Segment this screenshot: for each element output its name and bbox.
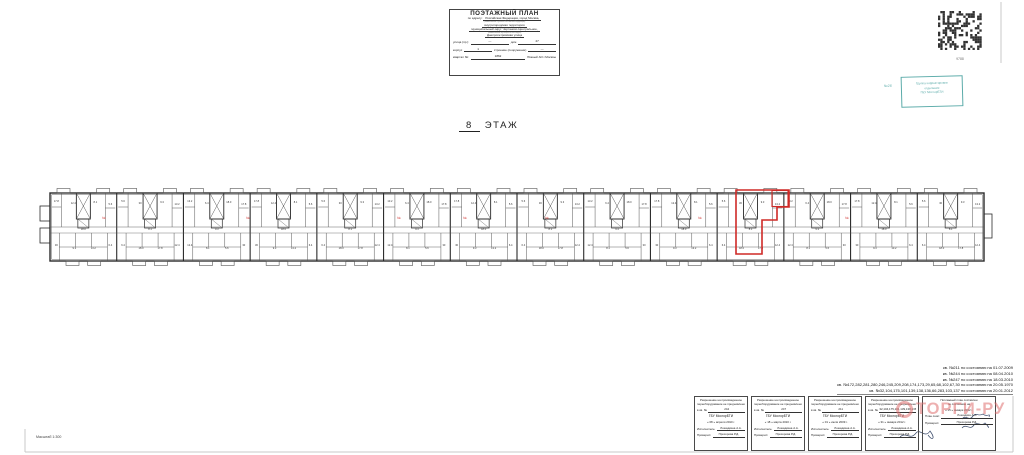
- svg-text:13.2: 13.2: [175, 202, 181, 206]
- kv-label: в кв. №: [811, 409, 821, 413]
- title-block-title: ПОЭТАЖНЫЙ ПЛАН: [453, 12, 556, 16]
- svg-text:9.3: 9.3: [815, 227, 819, 231]
- svg-text:12.4: 12.4: [871, 201, 877, 205]
- permission-stamp-2: Разрешение на произведенное переоборудов…: [751, 396, 805, 451]
- svg-text:6.4: 6.4: [109, 243, 113, 247]
- svg-text:17.8: 17.8: [454, 199, 460, 203]
- svg-text:9.3: 9.3: [73, 246, 77, 250]
- title-row-kvartal: квартал №: 1862 Южный АО г.Москвы: [453, 55, 556, 60]
- qr-code-icon: [937, 10, 983, 50]
- svg-text:18.0: 18.0: [339, 246, 345, 250]
- svg-text:12.4: 12.4: [187, 243, 193, 247]
- qr-block: 9788: [937, 10, 983, 61]
- svg-text:17.8: 17.8: [558, 246, 564, 250]
- svg-text:30: 30: [339, 201, 342, 205]
- row1-blank: —: [471, 40, 509, 45]
- svg-text:17.8: 17.8: [842, 202, 848, 206]
- svg-text:9.3: 9.3: [360, 200, 364, 204]
- korpus-label: корпус: [453, 49, 462, 53]
- org-name: ГБУ МосгорБТИ: [697, 415, 745, 419]
- svg-text:30: 30: [442, 243, 445, 247]
- svg-text:9.3: 9.3: [673, 246, 677, 250]
- svg-text:9.3: 9.3: [873, 246, 877, 250]
- svg-text:9.3: 9.3: [761, 200, 765, 204]
- apartment-annotations: кв. №211 по состоянию на 01.07.2009 кв. …: [837, 365, 1013, 395]
- svg-text:8.1: 8.1: [406, 246, 410, 250]
- annotation-line: кв. №32,104,175,101,139,138,136,66,283,1…: [837, 388, 1013, 395]
- svg-text:12.4: 12.4: [788, 243, 794, 247]
- svg-text:12.4: 12.4: [775, 243, 781, 247]
- svg-text:30: 30: [739, 201, 742, 205]
- svg-text:8.1: 8.1: [549, 227, 553, 231]
- watermark: ТОРГИ-РУ: [896, 400, 1005, 419]
- svg-text:8.1: 8.1: [206, 246, 210, 250]
- svg-text:18.0: 18.0: [827, 200, 833, 204]
- svg-text:18.0: 18.0: [481, 227, 487, 231]
- svg-text:18.0: 18.0: [139, 246, 145, 250]
- row1-label: улица (пр.):: [453, 41, 469, 45]
- svg-text:8.1: 8.1: [94, 200, 98, 204]
- executor-name: Лошадкина А.А.: [774, 427, 802, 432]
- executor-name: Лошадкина А.А.: [717, 427, 745, 432]
- stamp-text: переоборудование не предъявлено: [811, 403, 859, 407]
- executor-label: Исполнитель:: [811, 428, 829, 432]
- svg-text:5.6: 5.6: [509, 202, 513, 206]
- svg-text:18.0: 18.0: [739, 246, 745, 250]
- svg-text:30: 30: [255, 243, 258, 247]
- kv-value: 244: [708, 408, 745, 413]
- svg-text:12.4: 12.4: [975, 243, 981, 247]
- svg-text:5.6: 5.6: [522, 199, 526, 203]
- svg-text:6.4: 6.4: [309, 243, 313, 247]
- kv-value: 211: [822, 408, 859, 413]
- svg-text:30: 30: [139, 201, 142, 205]
- org-name: ГБУ МосгорБТИ: [754, 415, 802, 419]
- house-label: дом: [511, 41, 516, 45]
- svg-text:18.0: 18.0: [81, 227, 87, 231]
- svg-text:30: 30: [242, 243, 245, 247]
- executor-label: Исполнитель:: [754, 428, 772, 432]
- svg-text:9.3: 9.3: [215, 227, 219, 231]
- svg-text:18.0: 18.0: [281, 227, 287, 231]
- qr-number: 9788: [937, 57, 983, 61]
- checker-label: Проверил:: [697, 434, 711, 438]
- svg-text:9.3: 9.3: [561, 200, 565, 204]
- svg-text:17.8: 17.8: [958, 246, 964, 250]
- svg-text:8.1: 8.1: [749, 227, 753, 231]
- svg-text:5.6: 5.6: [109, 202, 113, 206]
- svg-text:13.2: 13.2: [491, 246, 497, 250]
- svg-text:13.2: 13.2: [291, 246, 297, 250]
- svg-text:6.4: 6.4: [405, 201, 409, 205]
- title-row-street: улица (пр.): — дом 27: [453, 40, 556, 45]
- svg-text:6.4: 6.4: [709, 243, 713, 247]
- svg-text:30: 30: [455, 243, 458, 247]
- checker-name: Прохорова Р.Д.: [884, 433, 916, 438]
- svg-text:13.2: 13.2: [691, 246, 697, 250]
- floor-label: 8ЭТАЖ: [459, 120, 518, 131]
- svg-text:5.6: 5.6: [825, 246, 829, 250]
- floor-word: ЭТАЖ: [485, 120, 518, 131]
- svg-text:13.2: 13.2: [891, 246, 897, 250]
- checker-name: Прохорова Р.Д.: [770, 433, 802, 438]
- svg-text:18.0: 18.0: [426, 200, 432, 204]
- executor-name: Лошадкина А.А.: [888, 427, 916, 432]
- svg-text:№: №: [845, 216, 849, 220]
- kv-label: в кв. №: [697, 409, 707, 413]
- svg-text:12.4: 12.4: [588, 243, 594, 247]
- registry-stamp-line3: ГБУ МосгорБТИ: [902, 89, 962, 95]
- svg-text:12.4: 12.4: [471, 201, 477, 205]
- stamp-date: « 01 » июля 2009 г.: [811, 421, 859, 425]
- svg-text:№: №: [397, 216, 401, 220]
- svg-text:9.3: 9.3: [473, 246, 477, 250]
- watermark-text: ТОРГИ-РУ: [916, 400, 1005, 419]
- svg-text:5.6: 5.6: [709, 202, 713, 206]
- svg-text:13.2: 13.2: [975, 202, 981, 206]
- title-block: ПОЭТАЖНЫЙ ПЛАН по адресу: Российская Фед…: [449, 9, 560, 76]
- highlighted-unit: [736, 190, 789, 254]
- svg-text:9.3: 9.3: [273, 246, 277, 250]
- svg-text:8.1: 8.1: [694, 200, 698, 204]
- svg-text:5.6: 5.6: [722, 199, 726, 203]
- svg-text:13.2: 13.2: [775, 202, 781, 206]
- checker-name: Прохорова Р.Д.: [941, 421, 993, 426]
- svg-text:30: 30: [855, 243, 858, 247]
- svg-text:5.6: 5.6: [321, 199, 325, 203]
- svg-text:18.0: 18.0: [627, 200, 633, 204]
- svg-text:8.1: 8.1: [606, 246, 610, 250]
- svg-text:12.4: 12.4: [387, 243, 393, 247]
- svg-text:13.2: 13.2: [387, 199, 393, 203]
- executor-label: Исполнитель:: [697, 428, 715, 432]
- stamp-text: переоборудование не предъявлено: [697, 403, 745, 407]
- svg-text:12.4: 12.4: [71, 201, 77, 205]
- svg-text:6.4: 6.4: [722, 243, 726, 247]
- okrug-value: Южный АО г.Москвы: [527, 56, 556, 60]
- korpus-value: 1: [464, 48, 492, 53]
- executor-name: Лошадкина А.А.: [831, 427, 859, 432]
- stamp-text: переоборудование не предъявлено: [754, 403, 802, 407]
- svg-text:30: 30: [539, 201, 542, 205]
- svg-text:8.1: 8.1: [148, 227, 152, 231]
- svg-text:18.0: 18.0: [939, 246, 945, 250]
- svg-text:5.6: 5.6: [625, 246, 629, 250]
- svg-text:17.8: 17.8: [441, 202, 447, 206]
- svg-text:17.8: 17.8: [358, 246, 364, 250]
- svg-text:6.4: 6.4: [922, 243, 926, 247]
- checker-label: Проверил:: [811, 434, 825, 438]
- stamp-date: « 31 » января 2012 г.: [868, 421, 916, 425]
- stamp-date: « 08 » апреля 2010 г.: [697, 421, 745, 425]
- svg-text:6.4: 6.4: [121, 243, 125, 247]
- svg-text:6.4: 6.4: [805, 201, 809, 205]
- svg-text:6.4: 6.4: [205, 201, 209, 205]
- svg-text:13.2: 13.2: [588, 199, 594, 203]
- svg-text:5.6: 5.6: [121, 199, 125, 203]
- svg-text:12.4: 12.4: [271, 201, 277, 205]
- checker-label: Проверил:: [925, 422, 939, 426]
- svg-text:17.8: 17.8: [654, 199, 660, 203]
- permission-stamp-3: Разрешение на произведенное переоборудов…: [808, 396, 862, 451]
- svg-text:8.1: 8.1: [494, 200, 498, 204]
- svg-text:17.8: 17.8: [241, 202, 247, 206]
- svg-text:13.2: 13.2: [375, 202, 381, 206]
- svg-text:17.8: 17.8: [158, 246, 164, 250]
- checker-label: Проверил:: [754, 434, 768, 438]
- svg-text:12.4: 12.4: [175, 243, 181, 247]
- svg-text:6.4: 6.4: [522, 243, 526, 247]
- svg-text:№: №: [463, 216, 467, 220]
- checker-name: Прохорова Р.Д.: [713, 433, 745, 438]
- svg-text:9.3: 9.3: [415, 227, 419, 231]
- kv-label: в кв. №: [868, 409, 878, 413]
- svg-text:30: 30: [655, 243, 658, 247]
- address-street: Днепропетровская улица: [485, 33, 524, 38]
- svg-text:6.4: 6.4: [321, 243, 325, 247]
- kv-label: в кв. №: [754, 409, 764, 413]
- svg-text:№: №: [102, 216, 106, 220]
- svg-text:18.0: 18.0: [881, 227, 887, 231]
- scale-label: Масштаб 1:300: [36, 435, 61, 439]
- svg-text:12.4: 12.4: [575, 243, 581, 247]
- svg-text:8.1: 8.1: [294, 200, 298, 204]
- svg-text:12.4: 12.4: [671, 201, 677, 205]
- svg-text:5.6: 5.6: [922, 199, 926, 203]
- watermark-logo-icon: [896, 401, 913, 418]
- org-name: ГБУ МосгорБТИ: [811, 415, 859, 419]
- permission-stamp-1: Разрешение на произведенное переоборудов…: [694, 396, 748, 451]
- svg-text:13.2: 13.2: [91, 246, 97, 250]
- svg-text:5.6: 5.6: [225, 246, 229, 250]
- svg-text:8.1: 8.1: [894, 200, 898, 204]
- svg-text:9.3: 9.3: [961, 200, 965, 204]
- svg-text:8.1: 8.1: [348, 227, 352, 231]
- svg-text:13.2: 13.2: [575, 202, 581, 206]
- svg-text:5.6: 5.6: [909, 202, 913, 206]
- document-page: 17.812.48.15.6309.313.26.418.05.6309.313…: [0, 0, 1024, 455]
- address-district: муниципальный округ Чертаново Центрально…: [469, 27, 539, 32]
- house-number: 27: [518, 40, 556, 45]
- svg-text:30: 30: [843, 243, 846, 247]
- svg-text:17.8: 17.8: [254, 199, 260, 203]
- checker-name: Прохорова Р.Д.: [827, 433, 859, 438]
- address-label: по адресу:: [468, 16, 483, 20]
- svg-text:17.8: 17.8: [854, 199, 860, 203]
- svg-text:18.0: 18.0: [681, 227, 687, 231]
- registry-stamp: Группа корректировки отделение ГБУ Мосго…: [901, 75, 964, 108]
- svg-text:9.3: 9.3: [615, 227, 619, 231]
- svg-text:9.3: 9.3: [160, 200, 164, 204]
- svg-text:№: №: [698, 216, 702, 220]
- svg-text:№: №: [246, 216, 250, 220]
- svg-text:18.0: 18.0: [539, 246, 545, 250]
- kv-value: 247: [765, 408, 802, 413]
- svg-text:№: №: [545, 216, 549, 220]
- floor-number: 8: [459, 120, 480, 132]
- svg-text:6.4: 6.4: [605, 201, 609, 205]
- svg-text:18.0: 18.0: [226, 200, 232, 204]
- svg-text:30: 30: [643, 243, 646, 247]
- kvartal-value: 1862: [471, 55, 525, 60]
- svg-text:5.6: 5.6: [425, 246, 429, 250]
- executor-label: Исполнитель:: [868, 428, 886, 432]
- svg-text:30: 30: [55, 243, 58, 247]
- checker-label: Проверил:: [868, 434, 882, 438]
- stroenie-value: —: [528, 48, 556, 53]
- svg-text:8.1: 8.1: [949, 227, 953, 231]
- svg-text:17.8: 17.8: [54, 199, 60, 203]
- svg-text:30: 30: [939, 201, 942, 205]
- svg-text:5.6: 5.6: [309, 202, 313, 206]
- kvartal-label: квартал №:: [453, 56, 469, 60]
- svg-text:6.4: 6.4: [909, 243, 913, 247]
- registry-side-mark: №2б: [884, 84, 892, 88]
- stamp-date: « 18 » марта 2010 г.: [754, 421, 802, 425]
- svg-text:13.2: 13.2: [187, 199, 193, 203]
- apartment-sections: 17.812.48.15.6309.313.26.418.05.6309.313…: [50, 189, 984, 266]
- stroenie-label: строение (сооружение): [494, 49, 526, 53]
- svg-text:8.1: 8.1: [806, 246, 810, 250]
- svg-text:6.4: 6.4: [509, 243, 513, 247]
- title-row-building: корпус 1 строение (сооружение) —: [453, 48, 556, 53]
- svg-text:12.4: 12.4: [375, 243, 381, 247]
- svg-text:17.8: 17.8: [642, 202, 648, 206]
